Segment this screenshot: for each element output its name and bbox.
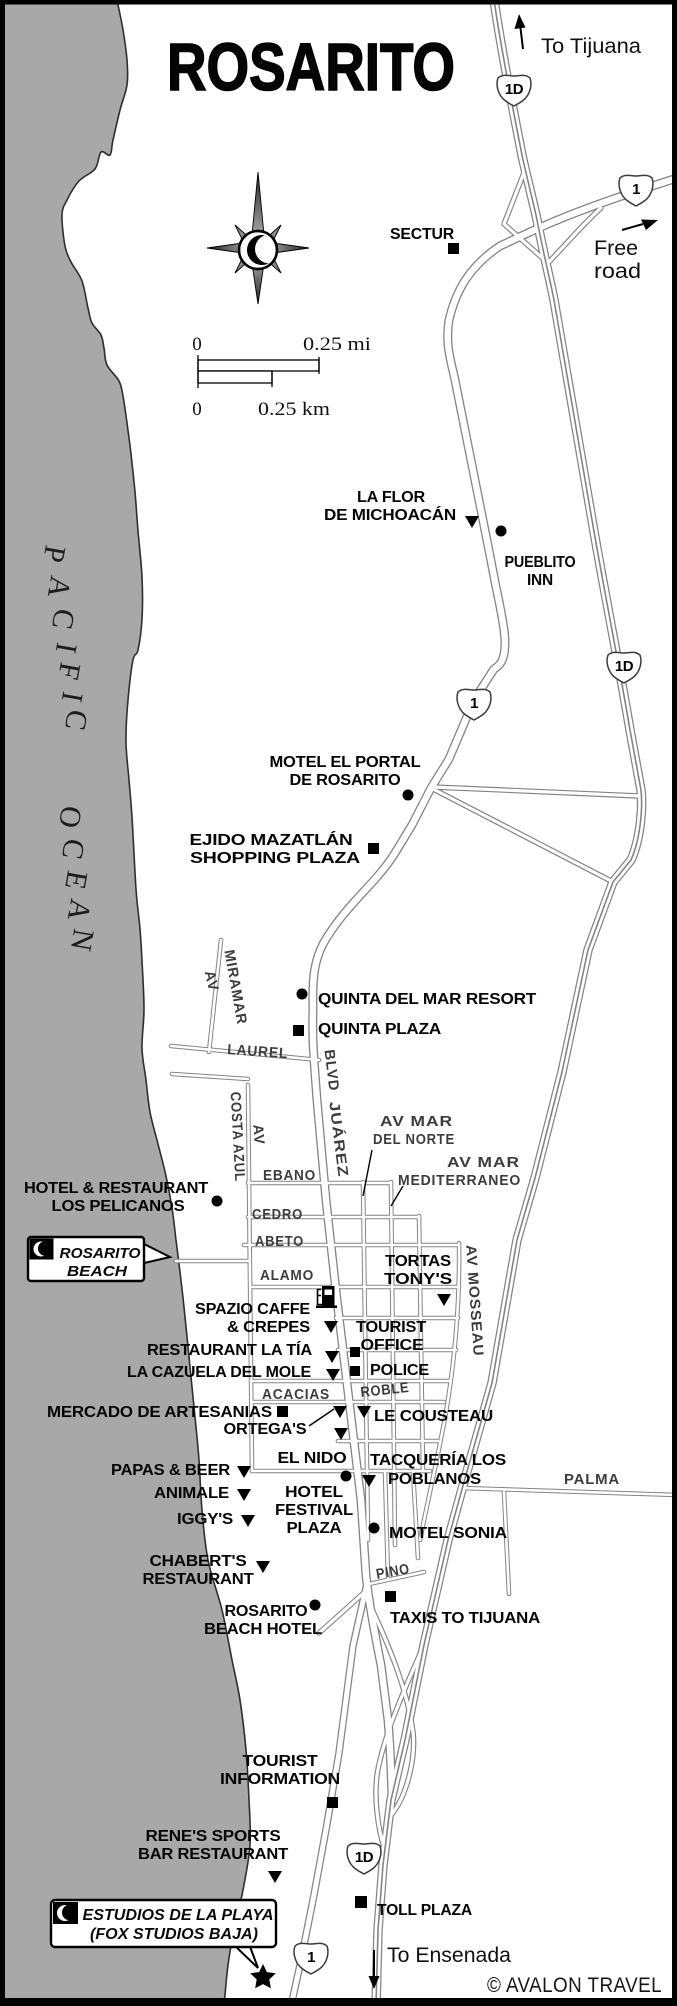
svg-text:IGGY'S: IGGY'S xyxy=(177,1511,233,1528)
svg-text:1: 1 xyxy=(470,695,478,712)
svg-text:PAPAS & BEER: PAPAS & BEER xyxy=(111,1462,230,1479)
svg-text:MEDITERRANEO: MEDITERRANEO xyxy=(398,1173,521,1189)
svg-text:BEACH: BEACH xyxy=(67,1263,128,1280)
svg-text:ABETO: ABETO xyxy=(255,1234,304,1250)
svg-text:0: 0 xyxy=(192,334,202,355)
svg-text:ROSARITO: ROSARITO xyxy=(225,1603,308,1620)
svg-text:POBLANOS: POBLANOS xyxy=(388,1471,481,1488)
svg-text:HOTEL: HOTEL xyxy=(285,1484,343,1501)
svg-text:SPAZIO CAFFE: SPAZIO CAFFE xyxy=(195,1301,310,1318)
svg-text:QUINTA PLAZA: QUINTA PLAZA xyxy=(318,1021,441,1038)
svg-text:LE COUSTEAU: LE COUSTEAU xyxy=(374,1408,493,1425)
svg-text:MERCADO DE ARTESANIAS: MERCADO DE ARTESANIAS xyxy=(47,1404,272,1421)
svg-text:1D: 1D xyxy=(355,1849,374,1866)
svg-text:PUEBLITO: PUEBLITO xyxy=(505,554,576,571)
svg-text:TOURIST: TOURIST xyxy=(243,1753,319,1770)
svg-text:DEL NORTE: DEL NORTE xyxy=(373,1132,455,1148)
svg-text:1D: 1D xyxy=(505,81,524,98)
svg-text:EBANO: EBANO xyxy=(263,1168,316,1184)
svg-text:POLICE: POLICE xyxy=(370,1362,429,1379)
svg-text:PALMA: PALMA xyxy=(564,1472,620,1488)
svg-text:AV MAR: AV MAR xyxy=(447,1155,520,1171)
svg-text:TAXIS TO TIJUANA: TAXIS TO TIJUANA xyxy=(390,1610,540,1627)
svg-text:QUINTA DEL MAR RESORT: QUINTA DEL MAR RESORT xyxy=(318,991,537,1008)
svg-text:ALAMO: ALAMO xyxy=(260,1268,314,1284)
svg-text:LA FLOR: LA FLOR xyxy=(357,489,425,506)
svg-text:FESTIVAL: FESTIVAL xyxy=(275,1502,353,1519)
svg-text:ROSARITO: ROSARITO xyxy=(167,30,455,105)
svg-text:0.25 mi: 0.25 mi xyxy=(303,334,371,355)
svg-text:1: 1 xyxy=(307,1949,315,1966)
svg-text:& CREPES: & CREPES xyxy=(227,1319,310,1336)
svg-text:1: 1 xyxy=(632,181,640,198)
svg-text:LA CAZUELA DEL MOLE: LA CAZUELA DEL MOLE xyxy=(127,1364,311,1381)
svg-text:TACQUERÍA LOS: TACQUERÍA LOS xyxy=(370,1452,506,1469)
svg-text:MOTEL SONIA: MOTEL SONIA xyxy=(389,1525,507,1542)
svg-text:BAR RESTAURANT: BAR RESTAURANT xyxy=(138,1846,289,1863)
svg-text:TOLL PLAZA: TOLL PLAZA xyxy=(377,1902,472,1919)
svg-text:BEACH HOTEL: BEACH HOTEL xyxy=(204,1621,322,1638)
svg-text:SHOPPING PLAZA: SHOPPING PLAZA xyxy=(190,850,360,867)
svg-text:1D: 1D xyxy=(615,658,634,675)
svg-text:PLAZA: PLAZA xyxy=(287,1520,342,1537)
svg-text:RESTAURANT LA TÍA: RESTAURANT LA TÍA xyxy=(147,1342,312,1359)
svg-text:To Ensenada: To Ensenada xyxy=(387,1944,511,1967)
svg-text:AV: AV xyxy=(249,1124,267,1146)
svg-text:TOURIST: TOURIST xyxy=(356,1319,427,1336)
svg-text:EL NIDO: EL NIDO xyxy=(278,1450,347,1467)
svg-text:© AVALON TRAVEL: © AVALON TRAVEL xyxy=(487,1974,662,1997)
svg-text:(FOX STUDIOS BAJA): (FOX STUDIOS BAJA) xyxy=(90,1926,258,1943)
svg-text:Free: Free xyxy=(594,237,638,260)
svg-text:MOTEL EL PORTAL: MOTEL EL PORTAL xyxy=(270,754,421,771)
svg-text:HOTEL & RESTAURANT: HOTEL & RESTAURANT xyxy=(24,1180,209,1197)
svg-text:ANIMALE: ANIMALE xyxy=(154,1485,229,1502)
svg-text:INFORMATION: INFORMATION xyxy=(220,1771,340,1788)
svg-text:To Tijuana: To Tijuana xyxy=(541,35,641,58)
svg-text:ACACIAS: ACACIAS xyxy=(262,1387,330,1403)
svg-text:road: road xyxy=(594,260,641,283)
svg-text:RESTAURANT: RESTAURANT xyxy=(143,1571,255,1588)
svg-text:ESTUDIOS DE LA PLAYA: ESTUDIOS DE LA PLAYA xyxy=(83,1907,274,1924)
svg-text:LOS PELICANOS: LOS PELICANOS xyxy=(52,1198,185,1215)
svg-text:RENE'S SPORTS: RENE'S SPORTS xyxy=(146,1828,281,1845)
svg-text:TORTAS: TORTAS xyxy=(385,1253,451,1270)
svg-text:TONY'S: TONY'S xyxy=(384,1271,452,1288)
svg-text:0.25 km: 0.25 km xyxy=(258,399,330,420)
svg-text:INN: INN xyxy=(527,572,553,589)
svg-text:AV MAR: AV MAR xyxy=(380,1114,453,1130)
svg-text:EJIDO MAZATLÁN: EJIDO MAZATLÁN xyxy=(190,832,353,849)
svg-text:DE MICHOACÁN: DE MICHOACÁN xyxy=(324,507,456,524)
svg-text:ORTEGA'S: ORTEGA'S xyxy=(224,1421,307,1438)
svg-text:SECTUR: SECTUR xyxy=(390,226,454,243)
svg-text:DE ROSARITO: DE ROSARITO xyxy=(290,772,401,789)
svg-text:OFFICE: OFFICE xyxy=(361,1337,424,1354)
svg-text:0: 0 xyxy=(192,399,202,420)
svg-text:CHABERT'S: CHABERT'S xyxy=(150,1553,247,1570)
svg-text:CEDRO: CEDRO xyxy=(252,1207,303,1223)
svg-text:ROSARITO: ROSARITO xyxy=(60,1245,141,1262)
